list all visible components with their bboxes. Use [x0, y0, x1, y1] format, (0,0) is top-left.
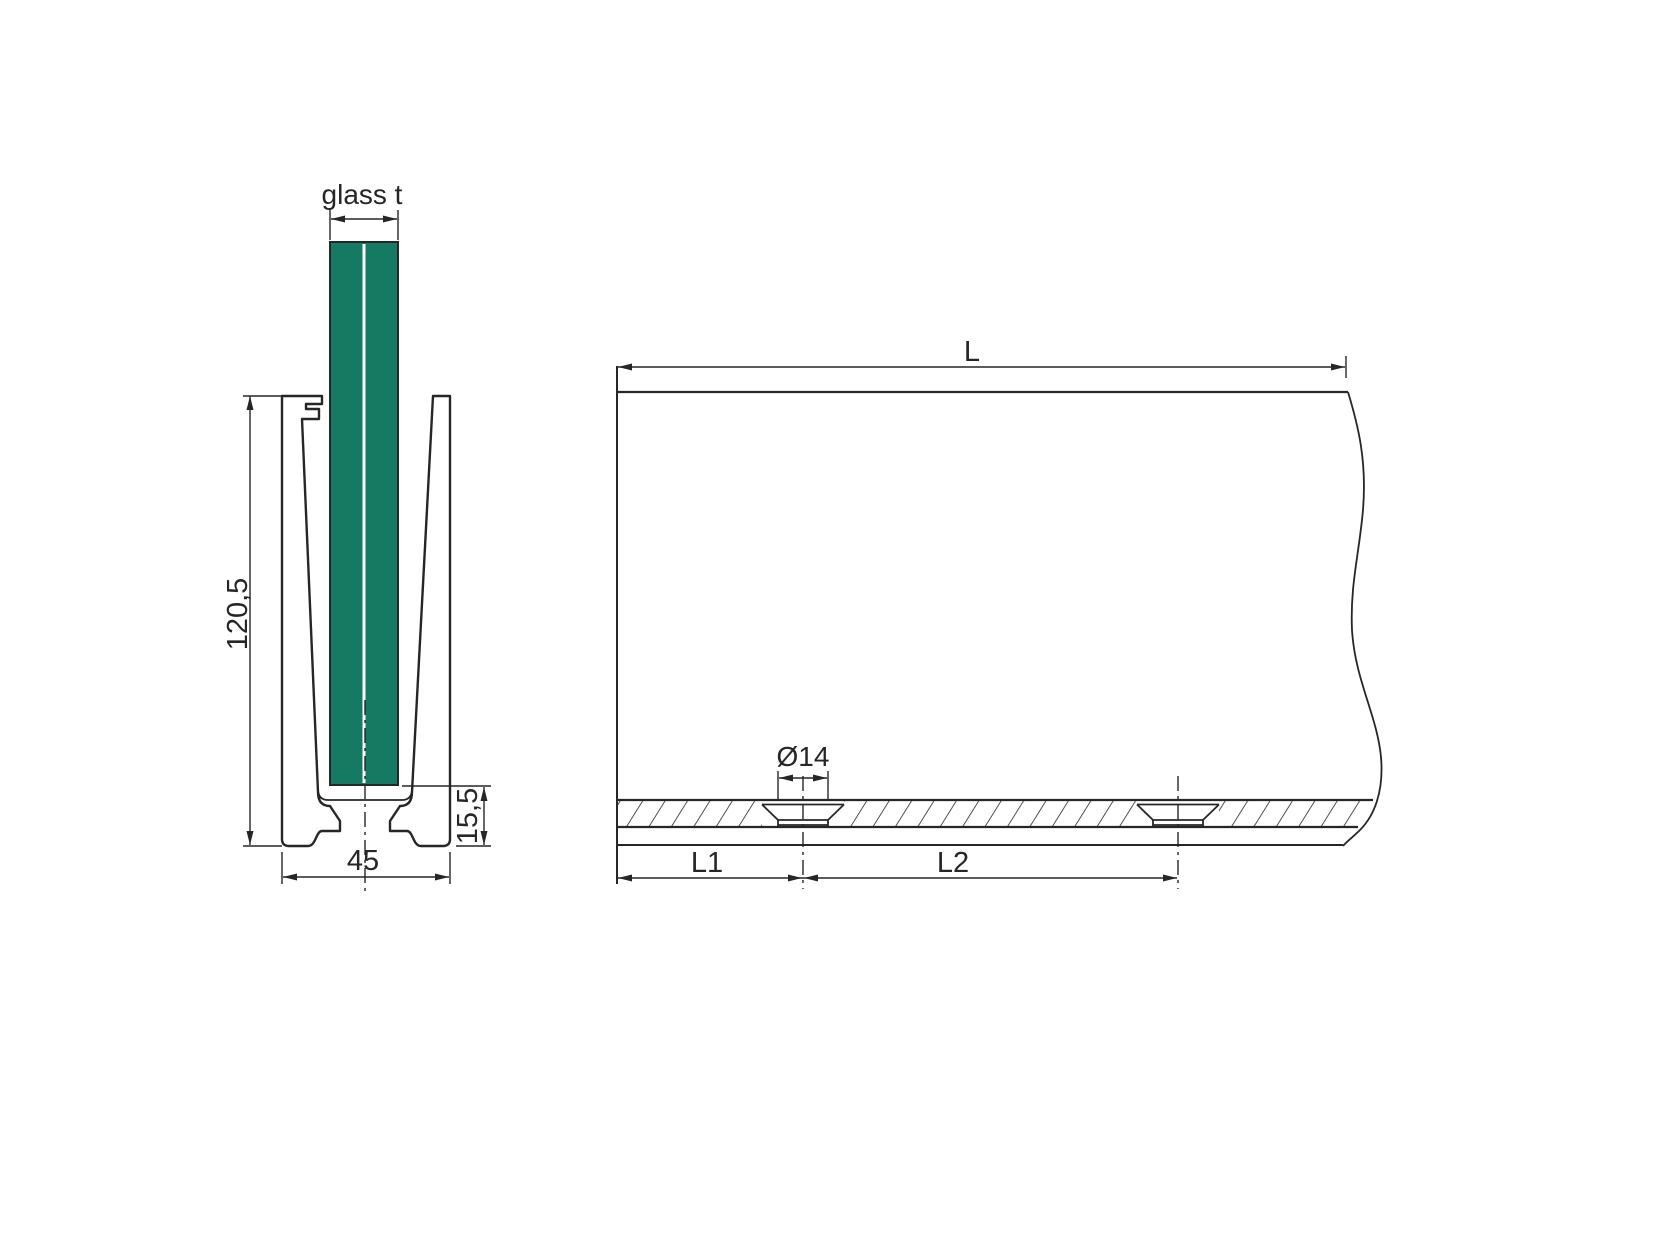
- total-length-label: L: [964, 336, 980, 368]
- profile-width-label: 45: [347, 845, 379, 877]
- profile-height-label: 120,5: [222, 578, 254, 651]
- glass-profile-drawing: glass t 120,5 15,5 45: [0, 0, 1680, 1260]
- dimension-profile-height: 120,5: [222, 396, 322, 846]
- hole-diameter-label: Ø14: [777, 741, 830, 772]
- dimension-hole-spacing: L1 L2: [618, 847, 1177, 882]
- base-height-label: 15,5: [452, 788, 484, 844]
- technical-drawing-canvas: glass t 120,5 15,5 45: [0, 0, 1680, 1260]
- first-hole-offset-label: L1: [691, 847, 723, 879]
- hole-spacing-label: L2: [937, 847, 969, 879]
- dimension-glass-thickness: glass t: [322, 179, 403, 240]
- dimension-profile-width: 45: [282, 845, 450, 884]
- break-line: [1343, 392, 1382, 846]
- base-band-hatch: [617, 800, 1372, 827]
- cross-section-view: glass t 120,5 15,5 45: [222, 179, 491, 893]
- glass-thickness-label: glass t: [322, 179, 403, 210]
- dimension-base-height: 15,5: [402, 786, 491, 846]
- elevation-view: L Ø14 L1 L2: [617, 336, 1382, 889]
- dimension-total-length: L: [618, 336, 1346, 378]
